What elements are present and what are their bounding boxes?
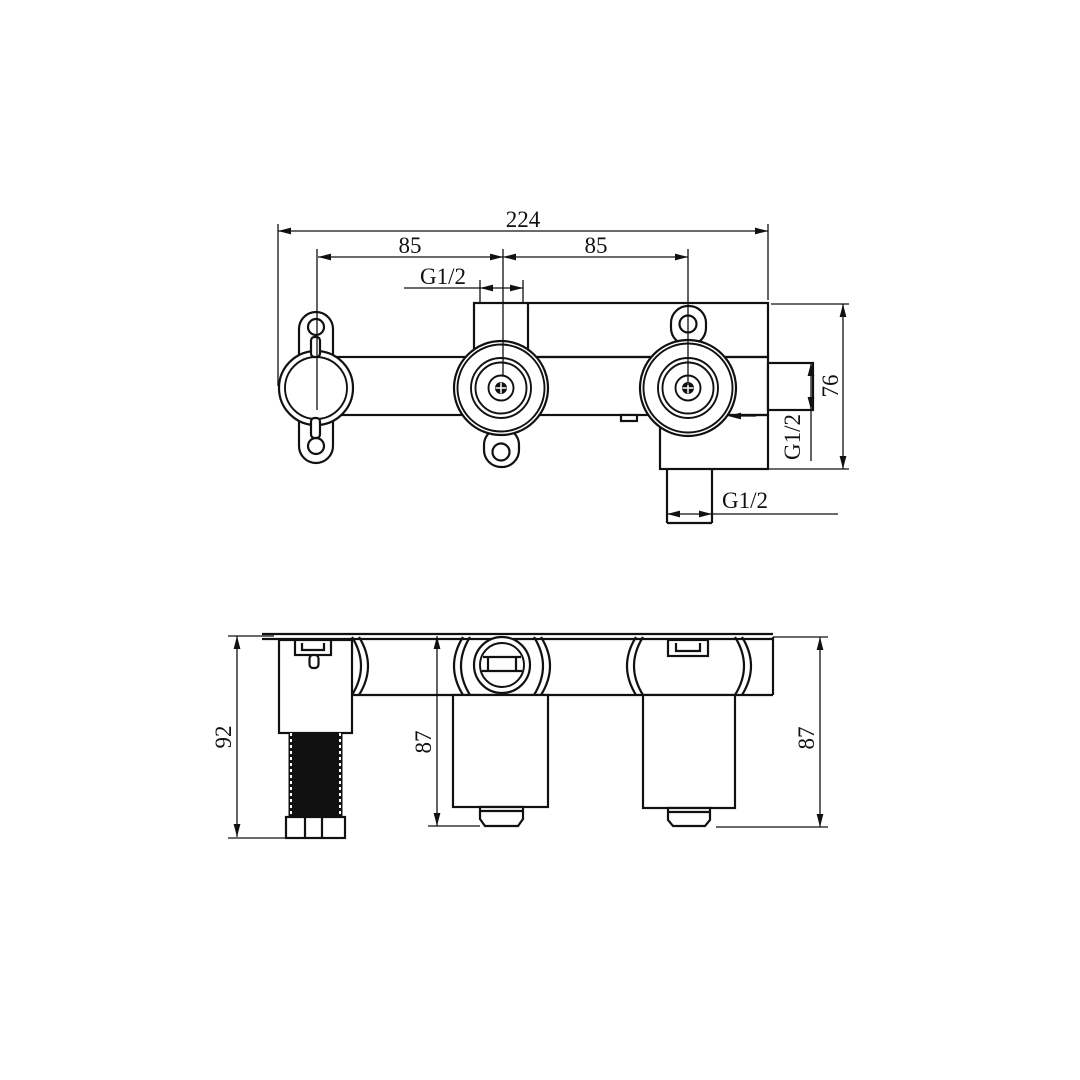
dim-overall-width: 224	[278, 207, 768, 234]
dim-side-port-label: G1/2	[780, 414, 805, 460]
dim-left-spacing-label: 85	[399, 233, 422, 258]
center-outlet	[480, 807, 523, 826]
side-view: 92 87 87	[211, 634, 828, 838]
mounting-nut	[286, 817, 345, 838]
bar-lower-edge	[352, 637, 773, 695]
left-cap	[295, 640, 331, 655]
dim-right-height-label: 87	[794, 727, 819, 750]
body-nub	[621, 415, 637, 421]
left-pin-bottom	[311, 418, 320, 438]
left-cap-pin	[310, 655, 319, 668]
front-dimensions: 224 85 85 G1/2	[278, 207, 849, 517]
technical-drawing-page: 224 85 85 G1/2	[0, 0, 1080, 1080]
dim-top-port-label: G1/2	[420, 264, 466, 289]
center-unit-side	[453, 637, 548, 826]
center-ear-hole	[493, 444, 510, 461]
left-unit-side	[279, 640, 352, 838]
dim-left-height-label: 92	[211, 726, 236, 749]
dim-left-height-92: 92	[211, 636, 288, 838]
left-mount-circle-outer	[279, 351, 353, 425]
dim-bottom-port-label: G1/2	[722, 488, 768, 513]
dim-left-spacing: 85	[318, 233, 503, 260]
dim-overall-width-label: 224	[506, 207, 541, 232]
left-screw-hole-bottom	[308, 438, 324, 454]
right-cap	[668, 640, 708, 656]
right-outlet	[668, 808, 710, 826]
threaded-rod	[289, 733, 342, 817]
edge-arrow-detail	[728, 413, 741, 420]
dim-bottom-port: G1/2	[667, 488, 838, 517]
left-pin-top	[311, 337, 320, 357]
right-block	[643, 695, 735, 808]
dim-height-76-label: 76	[818, 375, 843, 398]
left-screw-hole-top	[308, 319, 324, 335]
center-port-circle-outer	[474, 637, 530, 693]
dim-right-spacing-label: 85	[585, 233, 608, 258]
dim-top-port: G1/2	[404, 264, 523, 302]
dim-center-height-label: 87	[411, 731, 436, 754]
front-view: 224 85 85 G1/2	[278, 207, 849, 523]
center-valve-unit	[454, 341, 548, 467]
side-port-boss	[768, 363, 813, 410]
technical-drawing: 224 85 85 G1/2	[0, 0, 1080, 1080]
left-mounting-unit	[279, 312, 353, 463]
right-unit-side	[643, 640, 735, 826]
dim-right-spacing: 85	[503, 233, 688, 260]
center-block	[453, 695, 548, 807]
